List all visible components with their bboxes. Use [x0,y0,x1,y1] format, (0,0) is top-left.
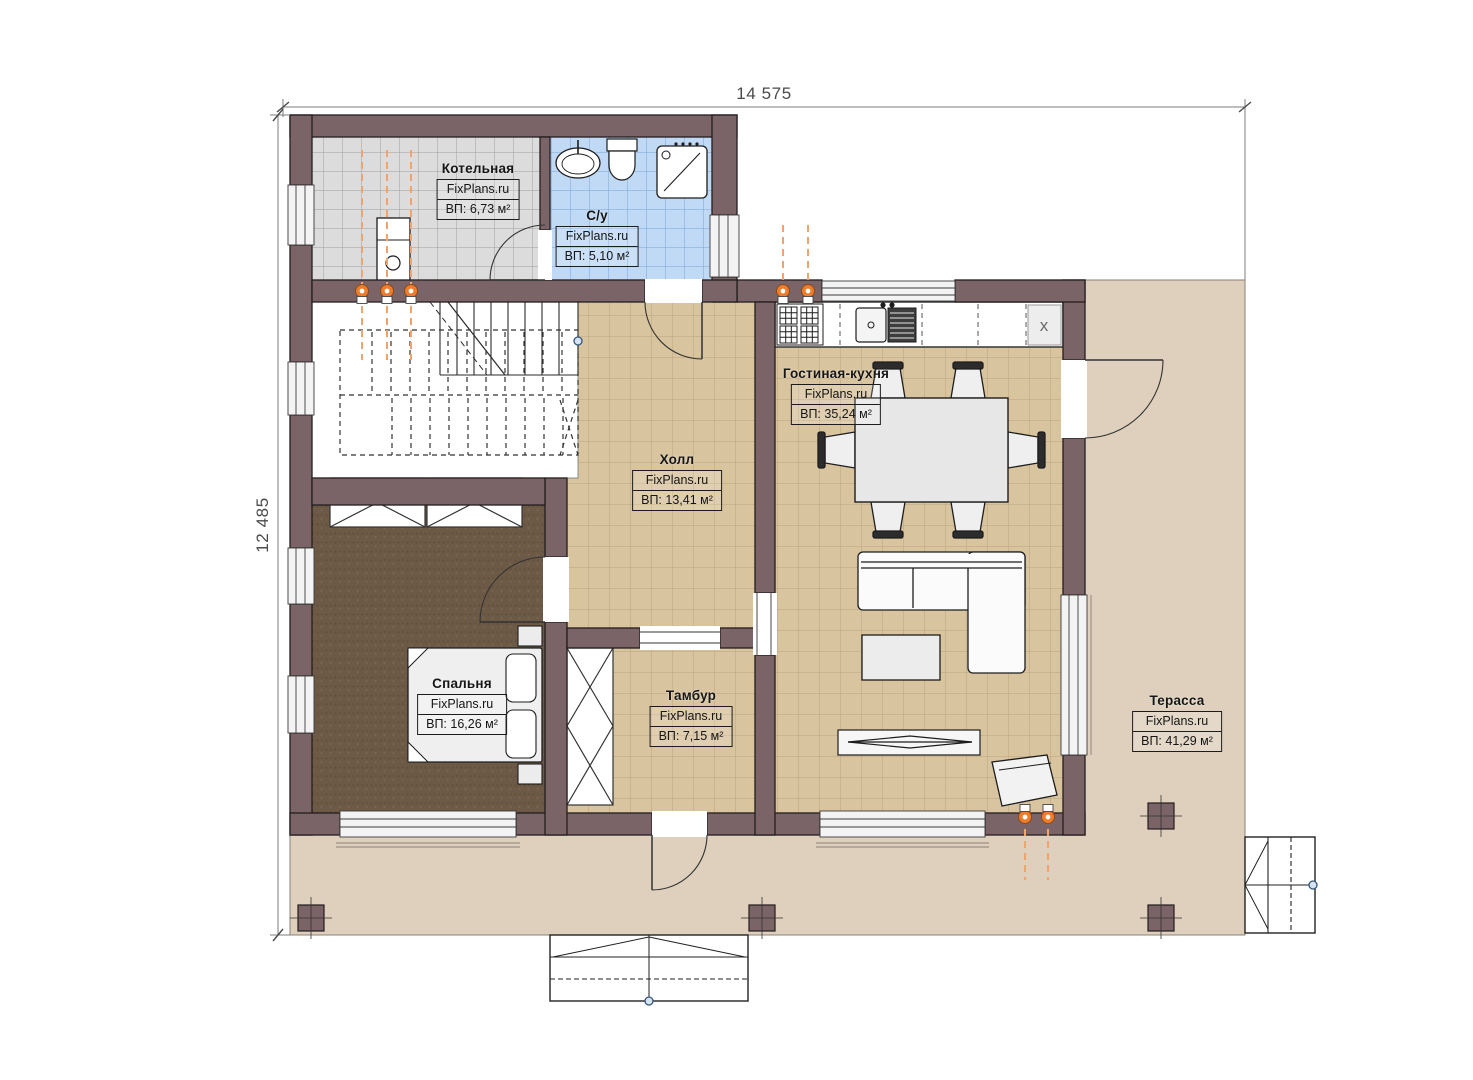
room-info-box: FixPlans.ru ВП: 5,10 м² [556,226,639,267]
room-area-text: ВП: 6,73 м² [438,199,519,219]
wall-bedroom [545,478,567,557]
coffee-table [862,635,940,680]
watermark-text: FixPlans.ru [651,707,732,726]
room-info-box: FixPlans.ru ВП: 41,29 м² [1132,711,1222,752]
window-bathroom-east [710,215,739,277]
nightstand-bottom [518,764,542,784]
room-info-box: FixPlans.ru ВП: 35,24 м² [791,384,881,425]
room-label-terrace: Терасса FixPlans.ru ВП: 41,29 м² [1132,693,1222,752]
room-area-text: ВП: 13,41 м² [633,490,721,510]
room-info-box: FixPlans.ru ВП: 13,41 м² [632,470,722,511]
room-name: Котельная [437,161,520,176]
watermark-text: FixPlans.ru [438,180,519,199]
opening-hall-vestibule [640,626,720,650]
nightstand-top [518,626,542,646]
room-name: Спальня [417,676,507,691]
wall-hall-vestibule [567,628,640,648]
room-label-living-kitchen: Гостиная-кухня FixPlans.ru ВП: 35,24 м² [783,366,889,425]
floor-plan-drawing: x [0,0,1473,1080]
window-bedroom-west-1 [288,548,314,604]
room-label-bathroom: С/у FixPlans.ru ВП: 5,10 м² [556,208,639,267]
room-name: Тамбур [650,688,733,703]
terrace-steps [1245,837,1315,933]
watermark-text: FixPlans.ru [792,385,880,404]
window-living-east [1061,595,1091,755]
room-area-text: ВП: 7,15 м² [651,726,732,746]
room-area-text: ВП: 16,26 м² [418,714,506,734]
room-area-text: ВП: 35,24 м² [792,404,880,424]
room-name: Гостиная-кухня [783,366,889,381]
room-label-bedroom: Спальня FixPlans.ru ВП: 16,26 м² [417,676,507,735]
fridge-cell: x [1028,305,1061,345]
wall-north [290,115,737,137]
window-stairs-west [288,362,314,415]
opening-hall-living [753,593,777,655]
tv-stand [838,730,980,755]
vestibule-wardrobe [567,648,613,805]
window-kitchen-north [822,281,955,301]
window-bedroom-west-2 [288,676,314,733]
staircase [312,302,578,478]
dimension-left [270,109,290,941]
watermark-text: FixPlans.ru [557,227,638,246]
kitchen-counter: x [775,302,1063,347]
room-label-hall: Холл FixPlans.ru ВП: 13,41 м² [632,452,722,511]
watermark-text: FixPlans.ru [1133,712,1221,731]
watermark-text: FixPlans.ru [418,695,506,714]
entrance-steps [550,935,748,1001]
room-area-text: ВП: 5,10 м² [557,246,638,266]
room-name: Терасса [1132,693,1222,708]
wall-hall-living [755,302,775,593]
room-info-box: FixPlans.ru ВП: 6,73 м² [437,179,520,220]
dimension-width-label: 14 575 [736,84,792,104]
watermark-text: FixPlans.ru [633,471,721,490]
room-label-boiler: Котельная FixPlans.ru ВП: 6,73 м² [437,161,520,220]
toilet [607,139,637,180]
room-info-box: FixPlans.ru ВП: 7,15 м² [650,706,733,747]
shower [657,142,707,198]
room-label-vestibule: Тамбур FixPlans.ru ВП: 7,15 м² [650,688,733,747]
pillow [506,654,536,702]
wall-bath-divider [540,137,550,230]
room-name: С/у [556,208,639,223]
boiler-unit [377,218,410,282]
pillow [506,710,536,758]
fridge-x-label: x [1040,316,1049,335]
dimension-height-label: 12 485 [253,497,273,553]
floor-plan-canvas: x [0,0,1473,1080]
room-info-box: FixPlans.ru ВП: 16,26 м² [417,694,507,735]
room-name: Холл [632,452,722,467]
window-boiler-west [288,185,314,245]
room-area-text: ВП: 41,29 м² [1133,731,1221,751]
